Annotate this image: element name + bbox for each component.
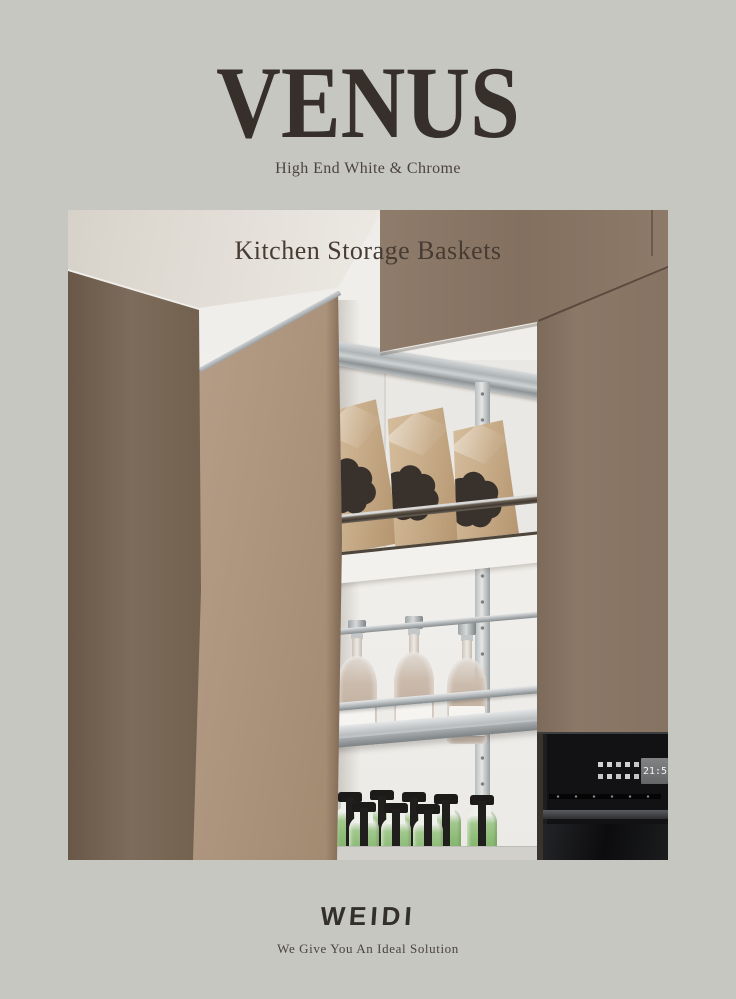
brand-logo: WEIDI	[0, 901, 736, 932]
brand-tagline: We Give You An Ideal Solution	[0, 941, 736, 957]
hero-photo: 21:5 Kitchen Storage Baskets	[68, 210, 668, 860]
oven-door	[543, 824, 668, 860]
built-in-oven: 21:5	[537, 732, 668, 860]
lower-basket-front	[306, 846, 546, 860]
oven-display: 21:5	[641, 758, 668, 784]
bottle-neck	[352, 638, 362, 658]
oven-control-icons	[598, 762, 603, 767]
page-subtitle: High End White & Chrome	[0, 160, 736, 178]
page-title: VENUS	[48, 52, 688, 155]
catalog-cover-page: VENUS High End White & Chrome	[0, 0, 736, 999]
oven-handle	[543, 810, 668, 819]
bottle-neck	[409, 634, 419, 654]
left-cabinet-panel	[68, 265, 208, 860]
oven-button-strip	[549, 794, 661, 799]
pullout-door-panel	[188, 285, 348, 860]
photo-caption: Kitchen Storage Baskets	[68, 236, 668, 266]
bottle-neck	[462, 640, 472, 660]
